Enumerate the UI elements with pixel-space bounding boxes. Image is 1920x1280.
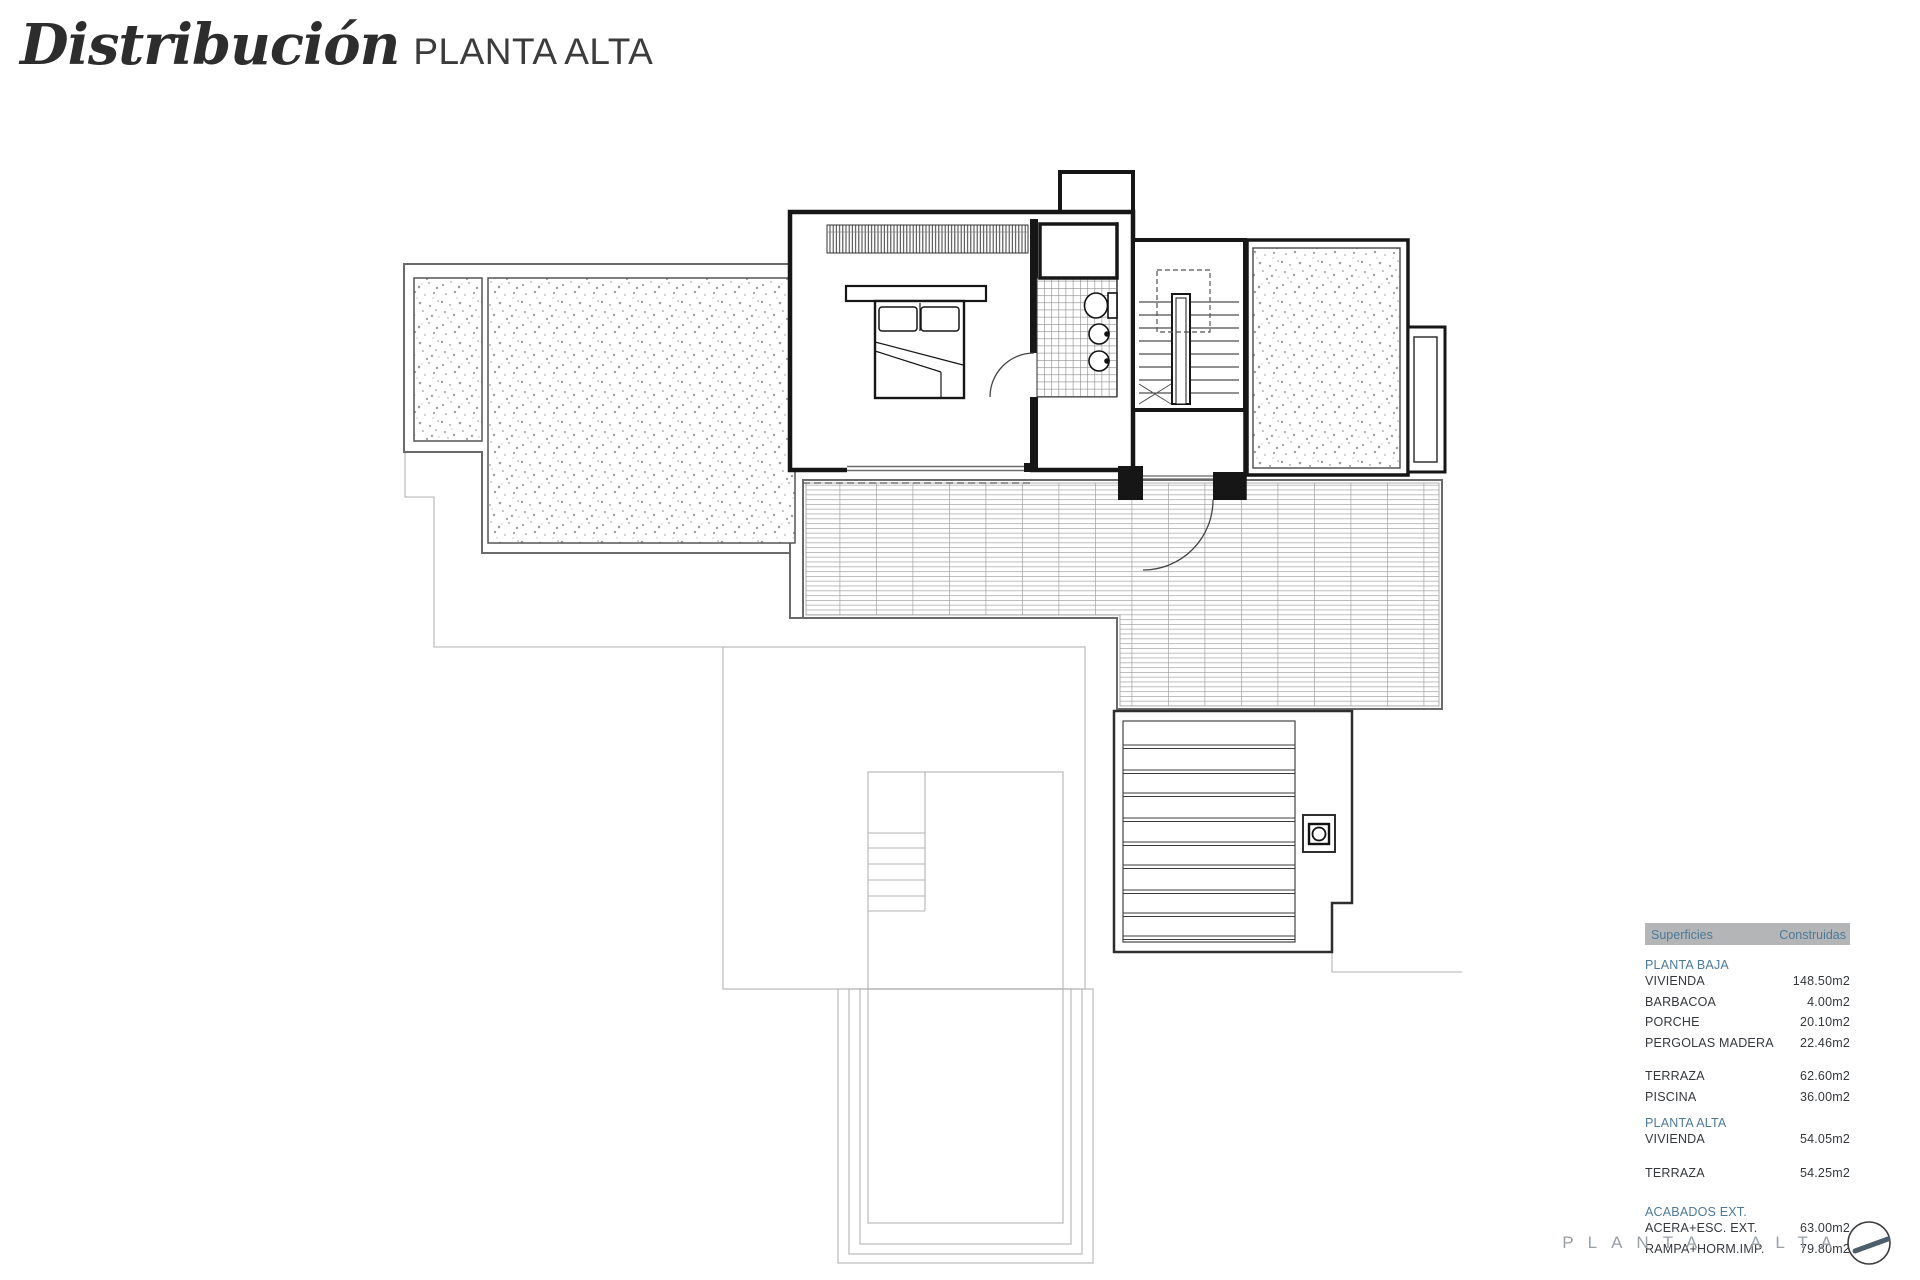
row-label: BARBACOA: [1645, 992, 1716, 1013]
shower: [1040, 224, 1117, 278]
bathroom: [1037, 224, 1117, 397]
row-label: VIVIENDA: [1645, 1129, 1705, 1150]
row-label: VIVIENDA: [1645, 971, 1705, 992]
table-spacer: [1645, 1053, 1850, 1066]
table-section-heading: ACABADOS EXT.: [1645, 1206, 1850, 1218]
row-value: 22.46m2: [1800, 1033, 1850, 1054]
side-window: [1408, 327, 1445, 472]
row-label: PISCINA: [1645, 1087, 1696, 1108]
table-section-heading: PLANTA BAJA: [1645, 959, 1850, 971]
table-spacer: [1645, 1150, 1850, 1163]
row-label: TERRAZA: [1645, 1066, 1705, 1087]
row-value: 54.25m2: [1800, 1163, 1850, 1184]
page-title: Distribución PLANTA ALTA: [20, 12, 653, 78]
gravel-roof-right: [1247, 240, 1408, 475]
wood-deck-pergola: [1114, 711, 1352, 952]
sliding-door: [847, 462, 1034, 475]
bedroom-window: [827, 225, 1028, 253]
toilet-icon: [1085, 293, 1118, 318]
gravel-roof-left: [404, 264, 803, 618]
terrace-tiled: [803, 480, 1442, 709]
surfaces-header-right: Construidas: [1779, 928, 1846, 942]
table-spacer: [1645, 1183, 1850, 1196]
surfaces-table-body: PLANTA BAJAVIVIENDA148.50m2BARBACOA4.00m…: [1645, 945, 1850, 1259]
table-row: BARBACOA4.00m2: [1645, 992, 1850, 1013]
row-value: 36.00m2: [1800, 1087, 1850, 1108]
surfaces-table-header: Superficies Construidas: [1645, 923, 1850, 945]
table-row: VIVIENDA54.05m2: [1645, 1129, 1850, 1150]
table-row: TERRAZA54.25m2: [1645, 1163, 1850, 1184]
table-section-heading: PLANTA ALTA: [1645, 1117, 1850, 1129]
floor-plan-drawing: [0, 0, 1920, 1280]
row-label: TERRAZA: [1645, 1163, 1705, 1184]
table-row: PORCHE20.10m2: [1645, 1012, 1850, 1033]
row-label: PERGOLAS MADERA: [1645, 1033, 1774, 1054]
title-main: Distribución: [20, 12, 399, 78]
row-value: 4.00m2: [1807, 992, 1850, 1013]
pool-outline: [838, 989, 1093, 1263]
row-value: 148.50m2: [1793, 971, 1850, 992]
floor-plan-page: Distribución PLANTA ALTA Superficies Con…: [0, 0, 1920, 1280]
table-row: VIVIENDA148.50m2: [1645, 971, 1850, 992]
plan-footer-label: PLANTA ALTA: [1562, 1233, 1846, 1253]
row-label: PORCHE: [1645, 1012, 1700, 1033]
barbecue-icon: [1309, 824, 1329, 844]
row-value: 20.10m2: [1800, 1012, 1850, 1033]
table-row: PISCINA36.00m2: [1645, 1087, 1850, 1108]
surfaces-table: Superficies Construidas PLANTA BAJAVIVIE…: [1645, 923, 1850, 1259]
title-sub: PLANTA ALTA: [413, 31, 653, 73]
row-value: 62.60m2: [1800, 1066, 1850, 1087]
north-arrow-icon: [1846, 1220, 1892, 1266]
surfaces-header-left: Superficies: [1651, 928, 1713, 942]
row-value: 54.05m2: [1800, 1129, 1850, 1150]
table-row: TERRAZA62.60m2: [1645, 1066, 1850, 1087]
table-row: PERGOLAS MADERA22.46m2: [1645, 1033, 1850, 1054]
